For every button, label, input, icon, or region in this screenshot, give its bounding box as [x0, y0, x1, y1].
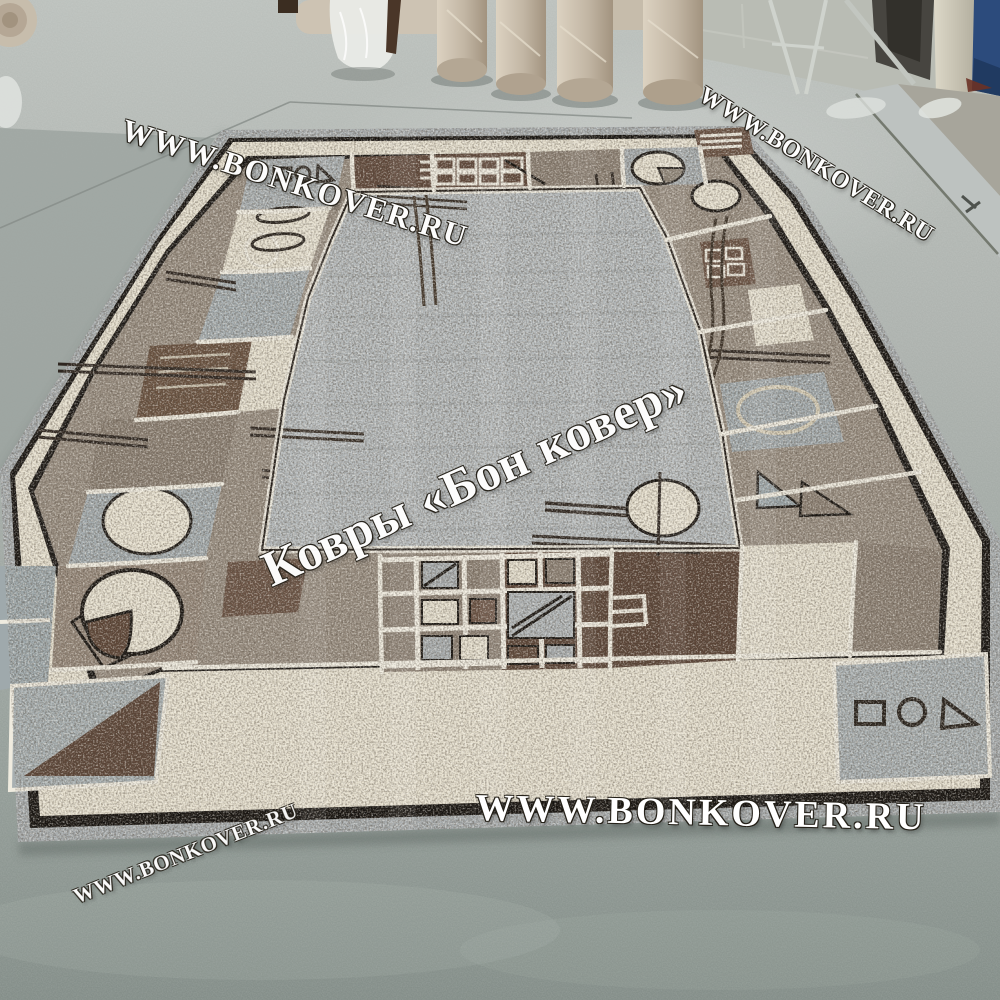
wooden-leg [278, 0, 298, 13]
photo-carpet-showroom: WWW.BONKOVER.RU WWW.BONKOVER.RU Ковры «Б… [0, 0, 1000, 1000]
plastic-wrap-bundle [330, 0, 397, 70]
watermark-bottom-center: WWW.BONKOVER.RU [475, 786, 927, 839]
